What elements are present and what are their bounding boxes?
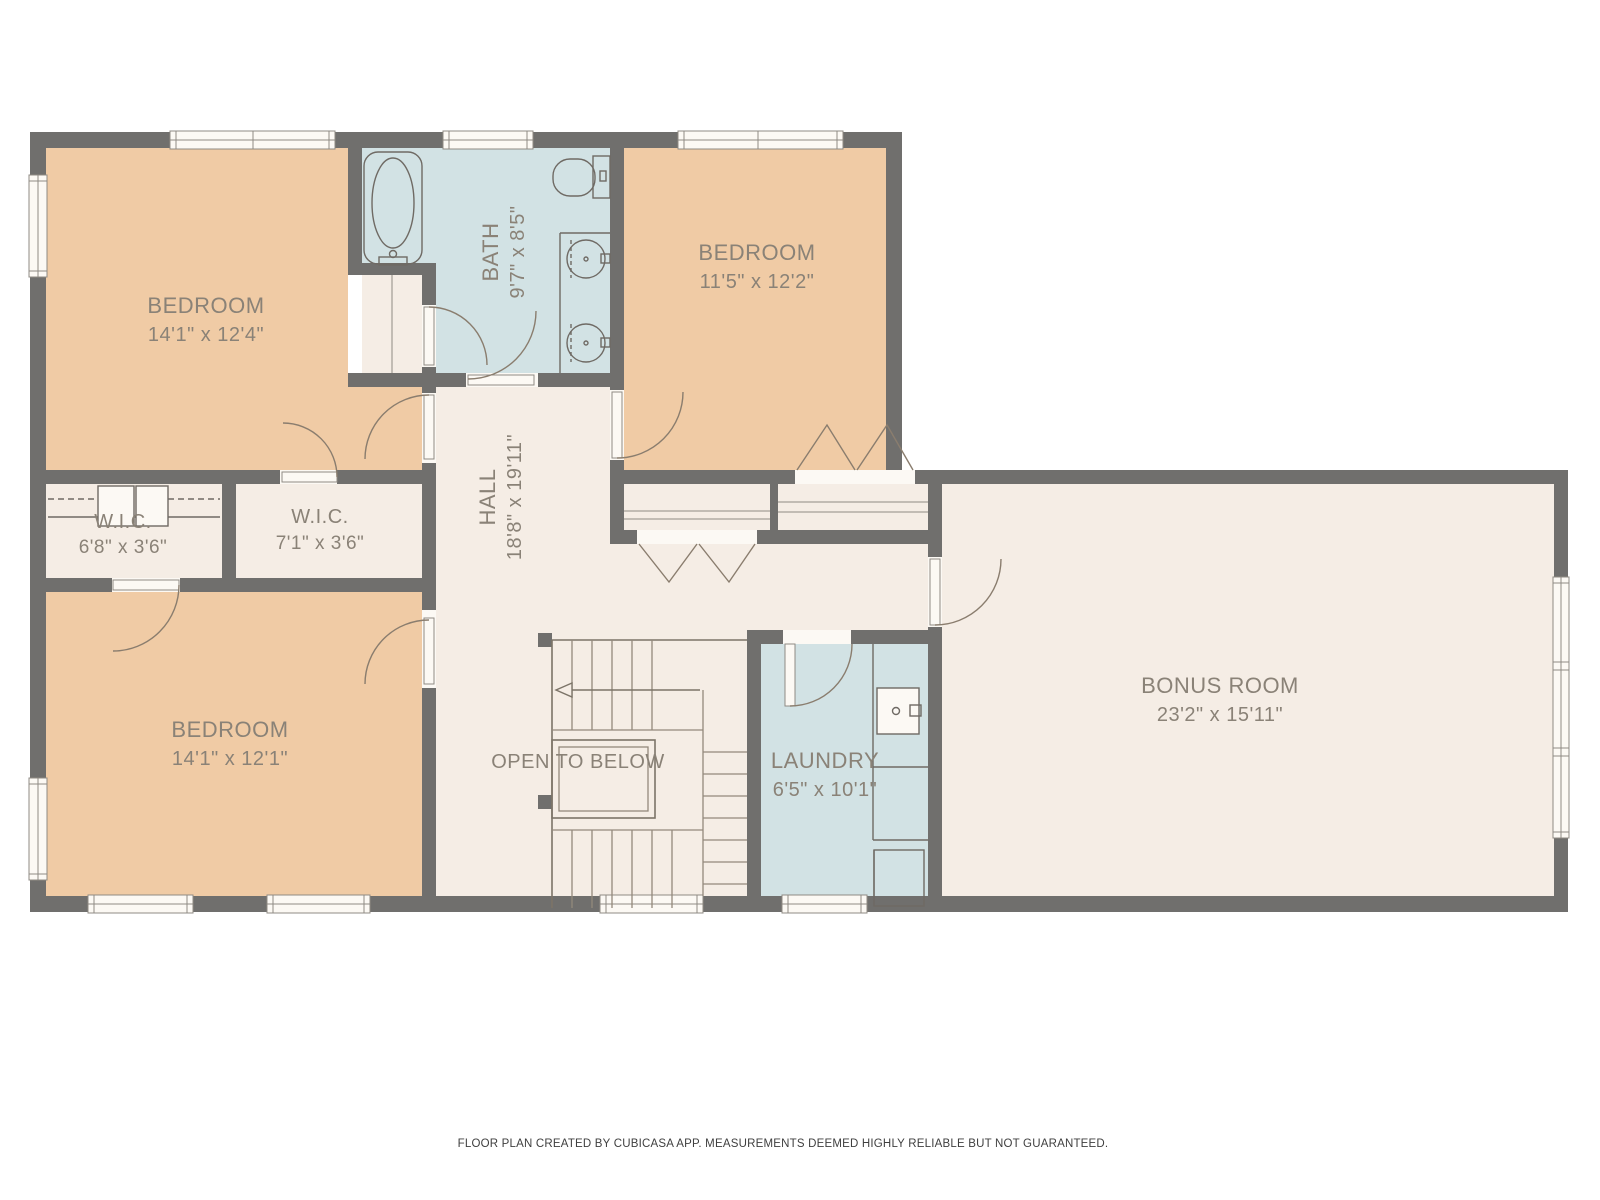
- svg-text:6'5" x 10'1": 6'5" x 10'1": [773, 779, 878, 801]
- svg-text:14'1" x 12'4": 14'1" x 12'4": [148, 324, 264, 346]
- window-bedroom-tl-top: [170, 131, 335, 149]
- svg-text:BONUS ROOM: BONUS ROOM: [1141, 673, 1299, 698]
- svg-text:6'8" x 3'6": 6'8" x 3'6": [79, 537, 168, 558]
- svg-text:BEDROOM: BEDROOM: [698, 240, 815, 265]
- svg-text:14'1" x 12'1": 14'1" x 12'1": [172, 748, 288, 770]
- svg-text:BEDROOM: BEDROOM: [147, 293, 264, 318]
- window-bedroom-bl-bottom-1: [88, 895, 193, 913]
- svg-text:BATH: BATH: [478, 222, 503, 281]
- bedroom-top-right-floor: [624, 148, 886, 470]
- footer-disclaimer: FLOOR PLAN CREATED BY CUBICASA APP. MEAS…: [458, 1138, 1109, 1150]
- svg-text:18'8" x 19'11": 18'8" x 19'11": [504, 434, 526, 560]
- window-laundry-bottom: [782, 895, 867, 913]
- window-bath-top: [443, 131, 533, 149]
- window-bedroom-bl-left: [29, 778, 47, 880]
- svg-text:LAUNDRY: LAUNDRY: [771, 748, 879, 773]
- window-bonus-right: [1553, 577, 1569, 838]
- label-open-to-below: OPEN TO BELOW: [491, 751, 665, 773]
- closet-hall-floor: [610, 484, 770, 530]
- window-bedroom-bl-bottom-2: [267, 895, 370, 913]
- svg-text:BEDROOM: BEDROOM: [171, 717, 288, 742]
- svg-text:HALL: HALL: [475, 468, 500, 525]
- svg-text:9'7" x 8'5": 9'7" x 8'5": [507, 206, 529, 299]
- svg-text:W.I.C.: W.I.C.: [291, 506, 348, 528]
- floor-plan-page: BEDROOM 14'1" x 12'4" BATH 9'7" x 8'5" B…: [0, 0, 1600, 1200]
- svg-text:OPEN TO BELOW: OPEN TO BELOW: [491, 751, 665, 773]
- svg-text:11'5" x 12'2": 11'5" x 12'2": [700, 271, 815, 293]
- wic-right-floor: [236, 484, 422, 578]
- svg-text:23'2" x 15'11": 23'2" x 15'11": [1157, 704, 1283, 726]
- closet-bedroom-floor: [778, 484, 928, 530]
- svg-text:7'1" x 3'6": 7'1" x 3'6": [276, 533, 365, 554]
- svg-text:W.I.C.: W.I.C.: [94, 511, 151, 533]
- window-bedroom-tl-left: [29, 175, 47, 277]
- window-bedroom-tr-top: [678, 131, 843, 149]
- floor-plan-drawing: BEDROOM 14'1" x 12'4" BATH 9'7" x 8'5" B…: [0, 0, 1600, 1200]
